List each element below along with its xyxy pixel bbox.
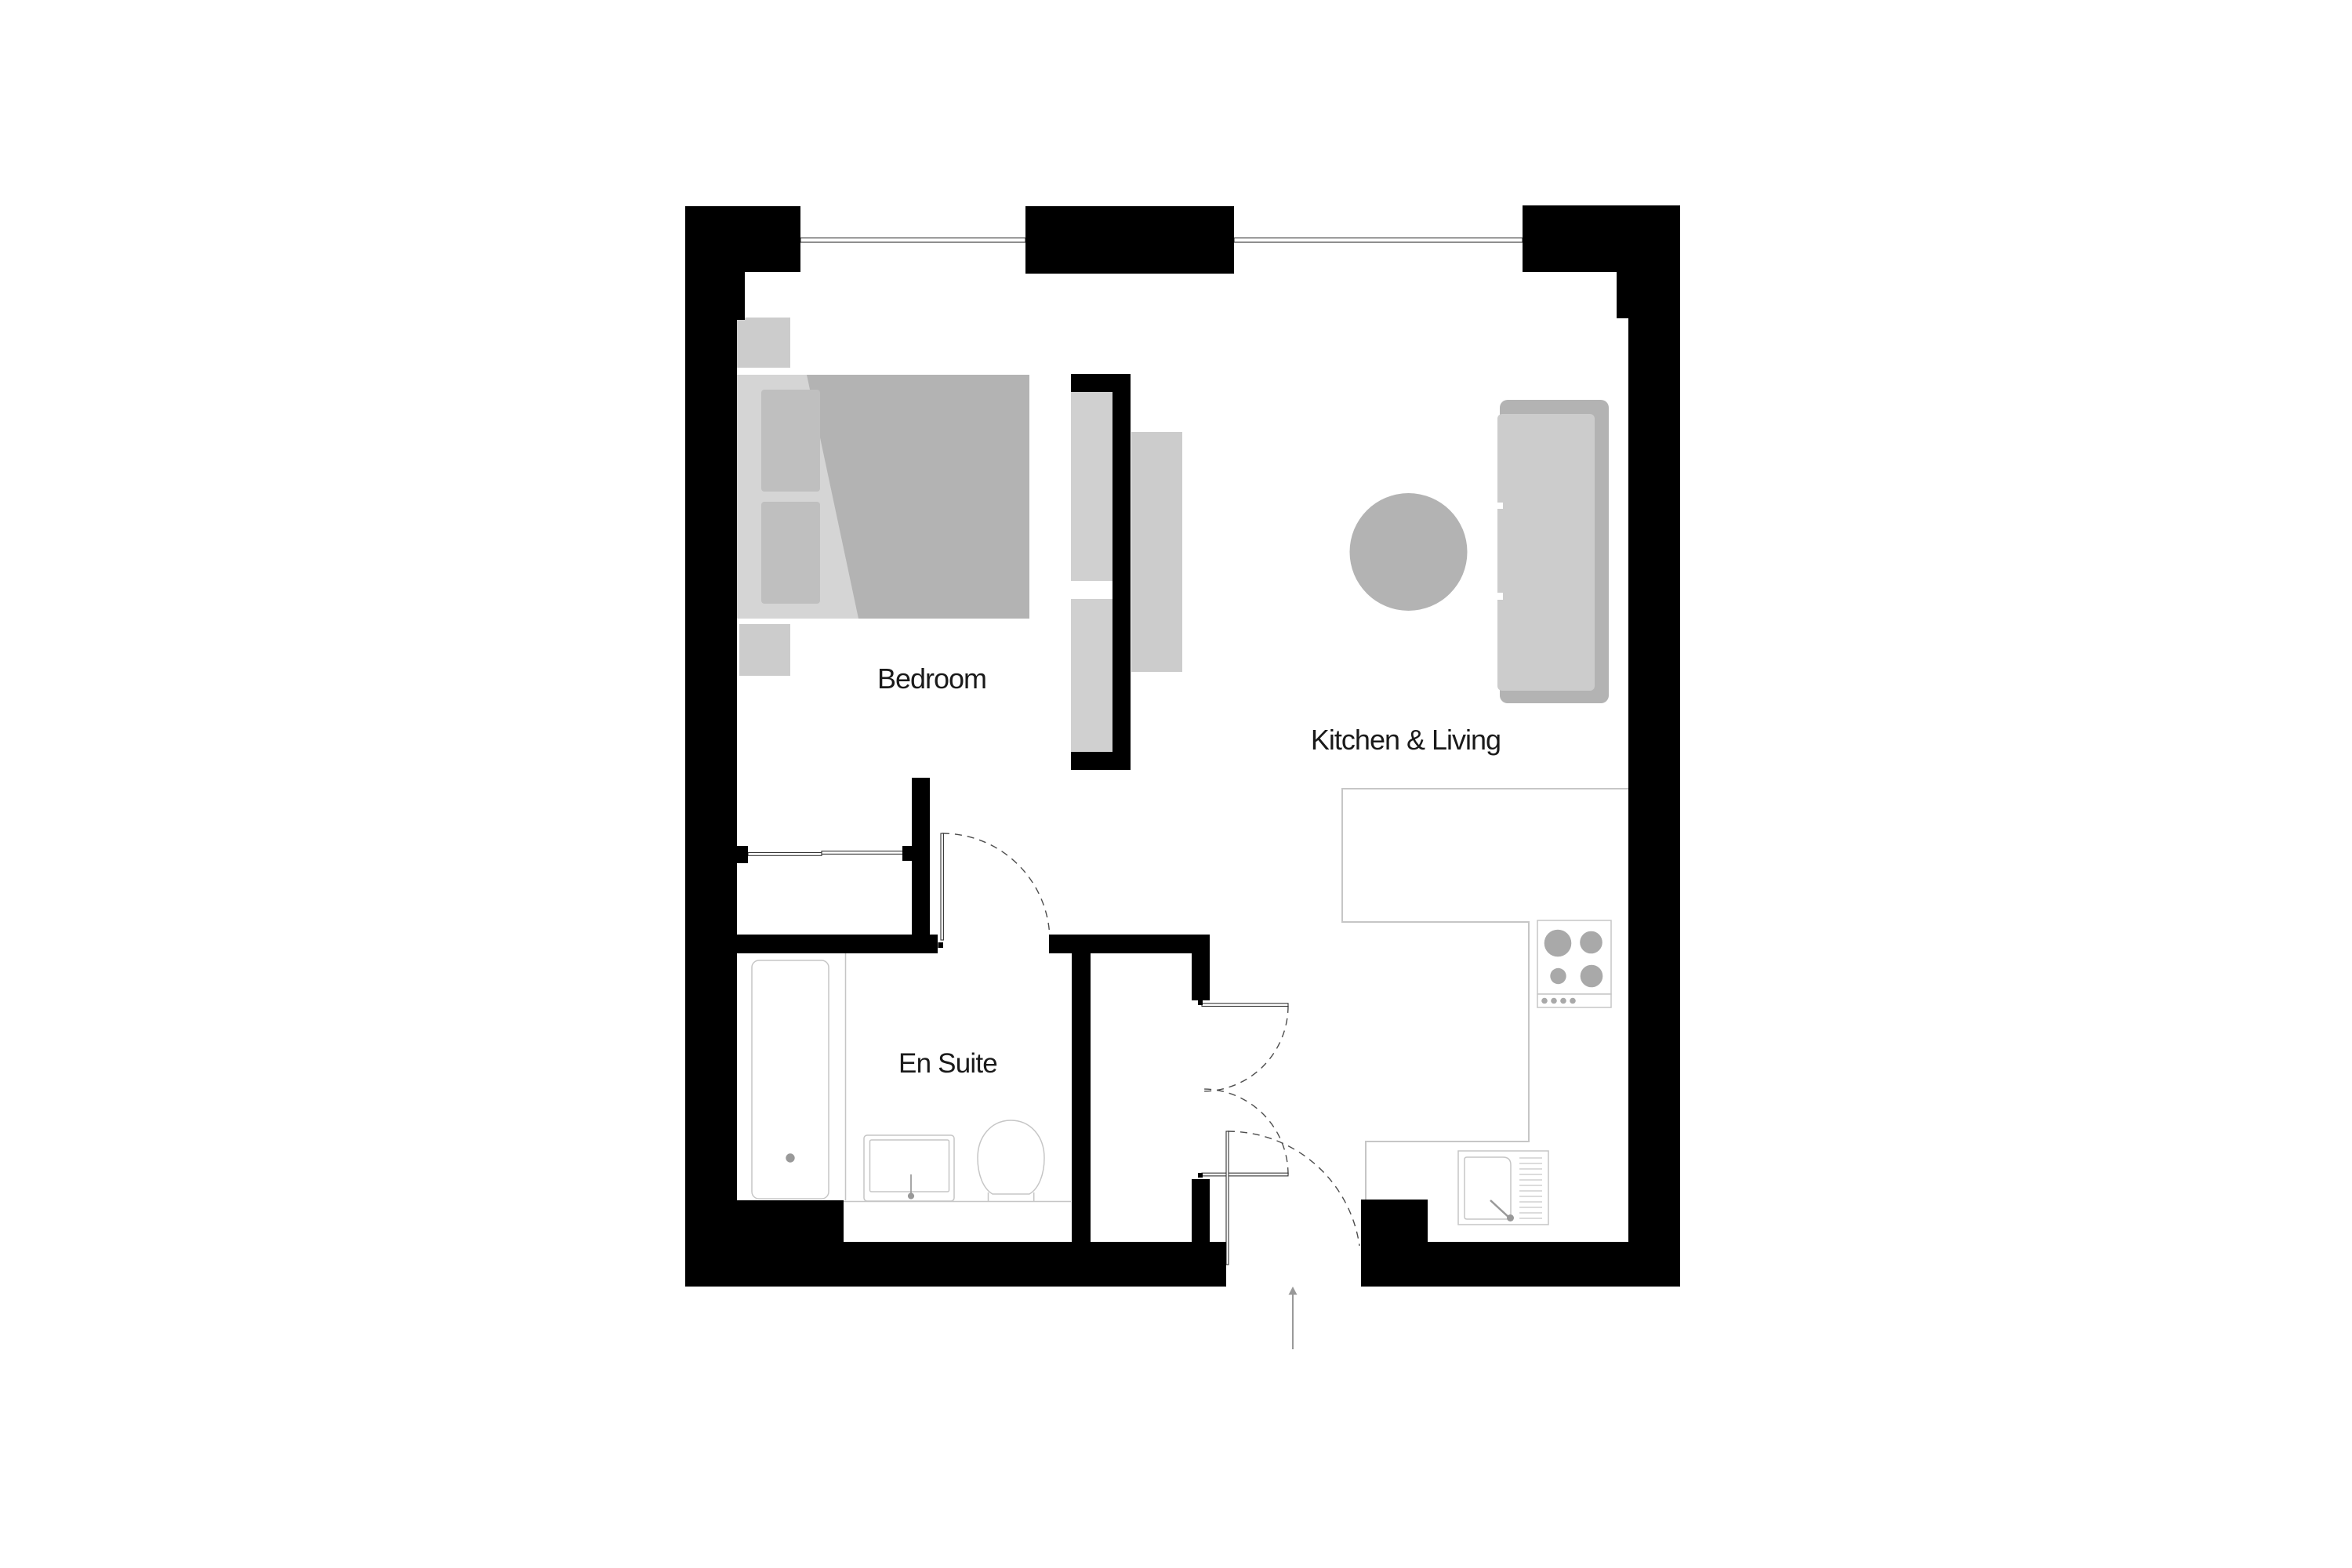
- svg-text:En Suite: En Suite: [898, 1048, 997, 1079]
- svg-text:Bedroom: Bedroom: [877, 662, 986, 695]
- svg-text:Kitchen & Living: Kitchen & Living: [1311, 724, 1501, 756]
